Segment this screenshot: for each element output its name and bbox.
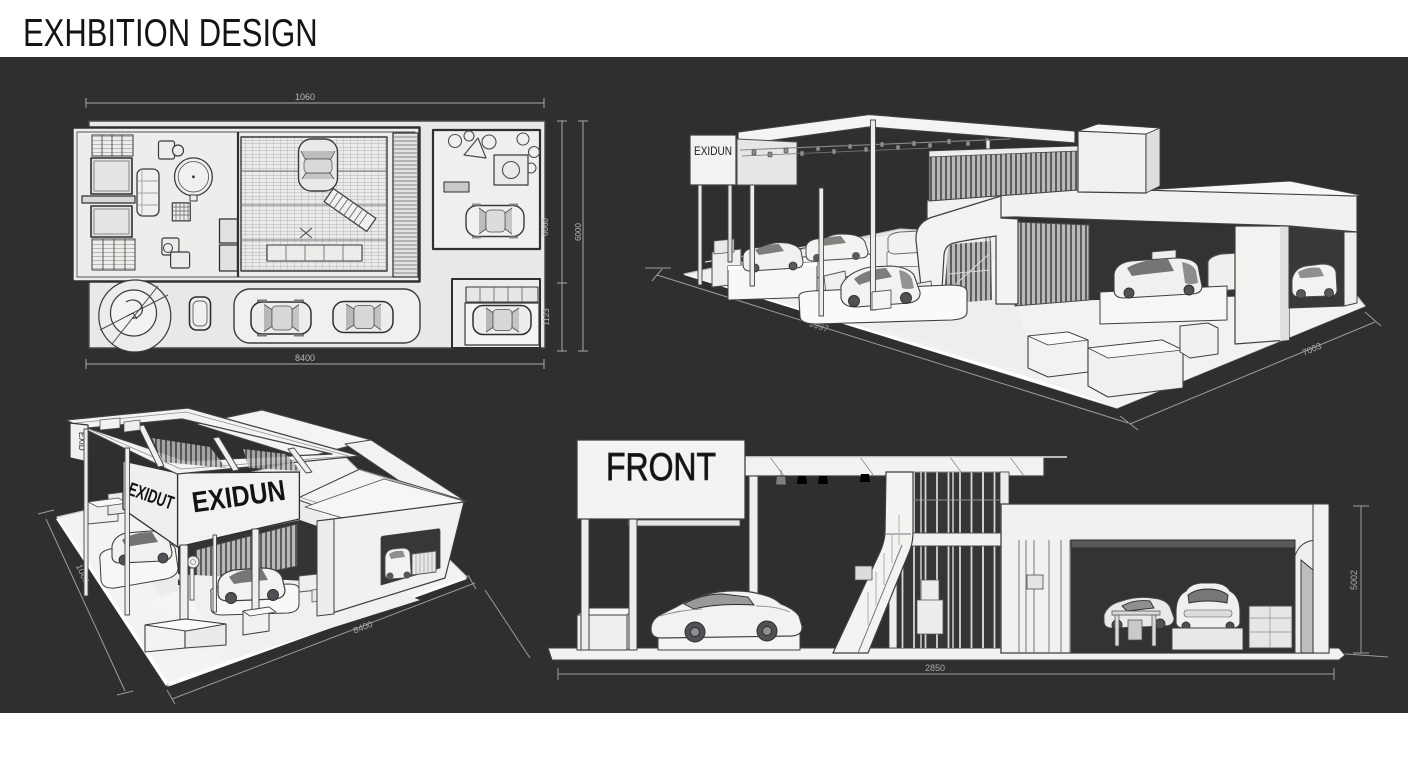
svg-text:FRONT: FRONT bbox=[606, 446, 716, 489]
svg-text:7003: 7003 bbox=[1301, 341, 1323, 358]
svg-text:1123: 1123 bbox=[542, 308, 551, 326]
svg-text:2850: 2850 bbox=[925, 663, 945, 673]
svg-text:1060: 1060 bbox=[295, 92, 315, 102]
svg-text:5002: 5002 bbox=[1349, 570, 1359, 590]
svg-text:EXIDUN: EXIDUN bbox=[694, 144, 732, 158]
svg-text:0060: 0060 bbox=[541, 218, 550, 236]
svg-text:8400: 8400 bbox=[295, 353, 315, 363]
svg-text:6000: 6000 bbox=[574, 223, 583, 241]
svg-text:8400: 8400 bbox=[352, 619, 374, 636]
